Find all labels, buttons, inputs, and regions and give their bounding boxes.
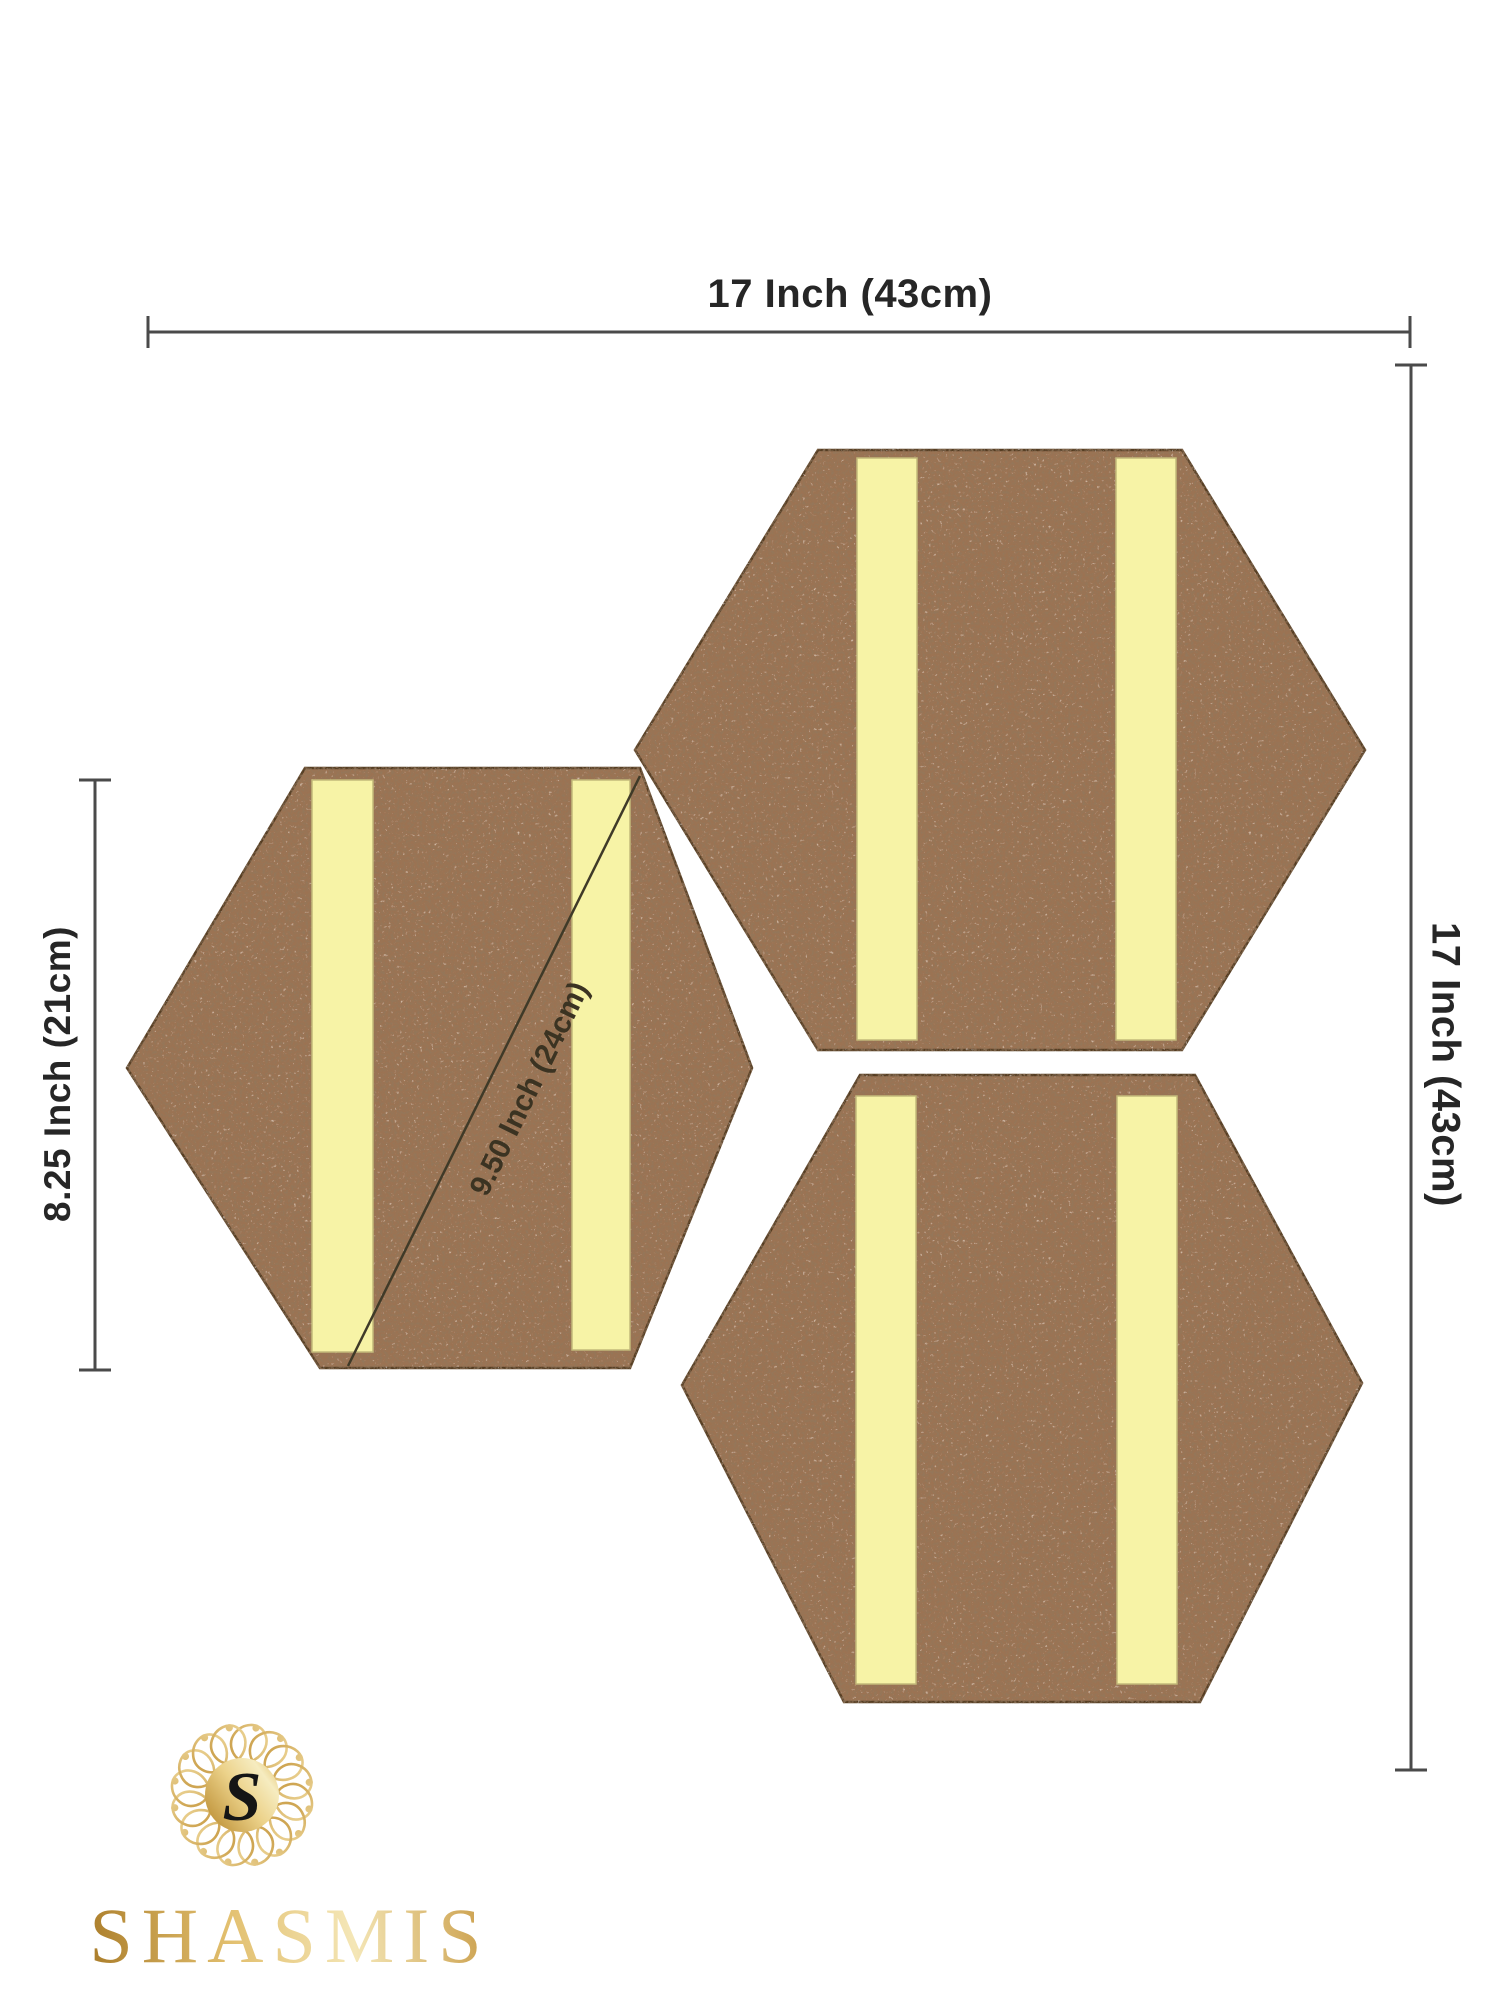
adhesive-strip xyxy=(1117,1096,1177,1684)
logo-monogram-s: S xyxy=(223,1759,262,1836)
dimension-line-left xyxy=(79,780,111,1370)
adhesive-strip xyxy=(1116,458,1176,1040)
adhesive-strip xyxy=(856,1096,916,1684)
hexagon-tile-bottom-right xyxy=(682,1075,1362,1702)
adhesive-strip xyxy=(857,458,917,1040)
adhesive-strip xyxy=(572,780,630,1350)
product-dimension-diagram: S SHASMIS 17 Inch (43cm) 17 Inch (43cm) … xyxy=(0,0,1512,2016)
left-height-label: 8.25 Inch (21cm) xyxy=(37,874,79,1274)
brand-logo: S SHASMIS xyxy=(89,1720,490,1979)
brand-name: SHASMIS xyxy=(89,1892,490,1979)
logo-emblem: S xyxy=(167,1720,316,1869)
right-height-label: 17 Inch (43cm) xyxy=(1423,865,1468,1265)
dimension-line-top xyxy=(148,316,1410,348)
adhesive-strip xyxy=(312,780,373,1352)
hexagon-tile-top-right xyxy=(635,450,1365,1050)
hexagon-tile-left xyxy=(127,768,752,1368)
top-width-label: 17 Inch (43cm) xyxy=(650,272,1050,317)
